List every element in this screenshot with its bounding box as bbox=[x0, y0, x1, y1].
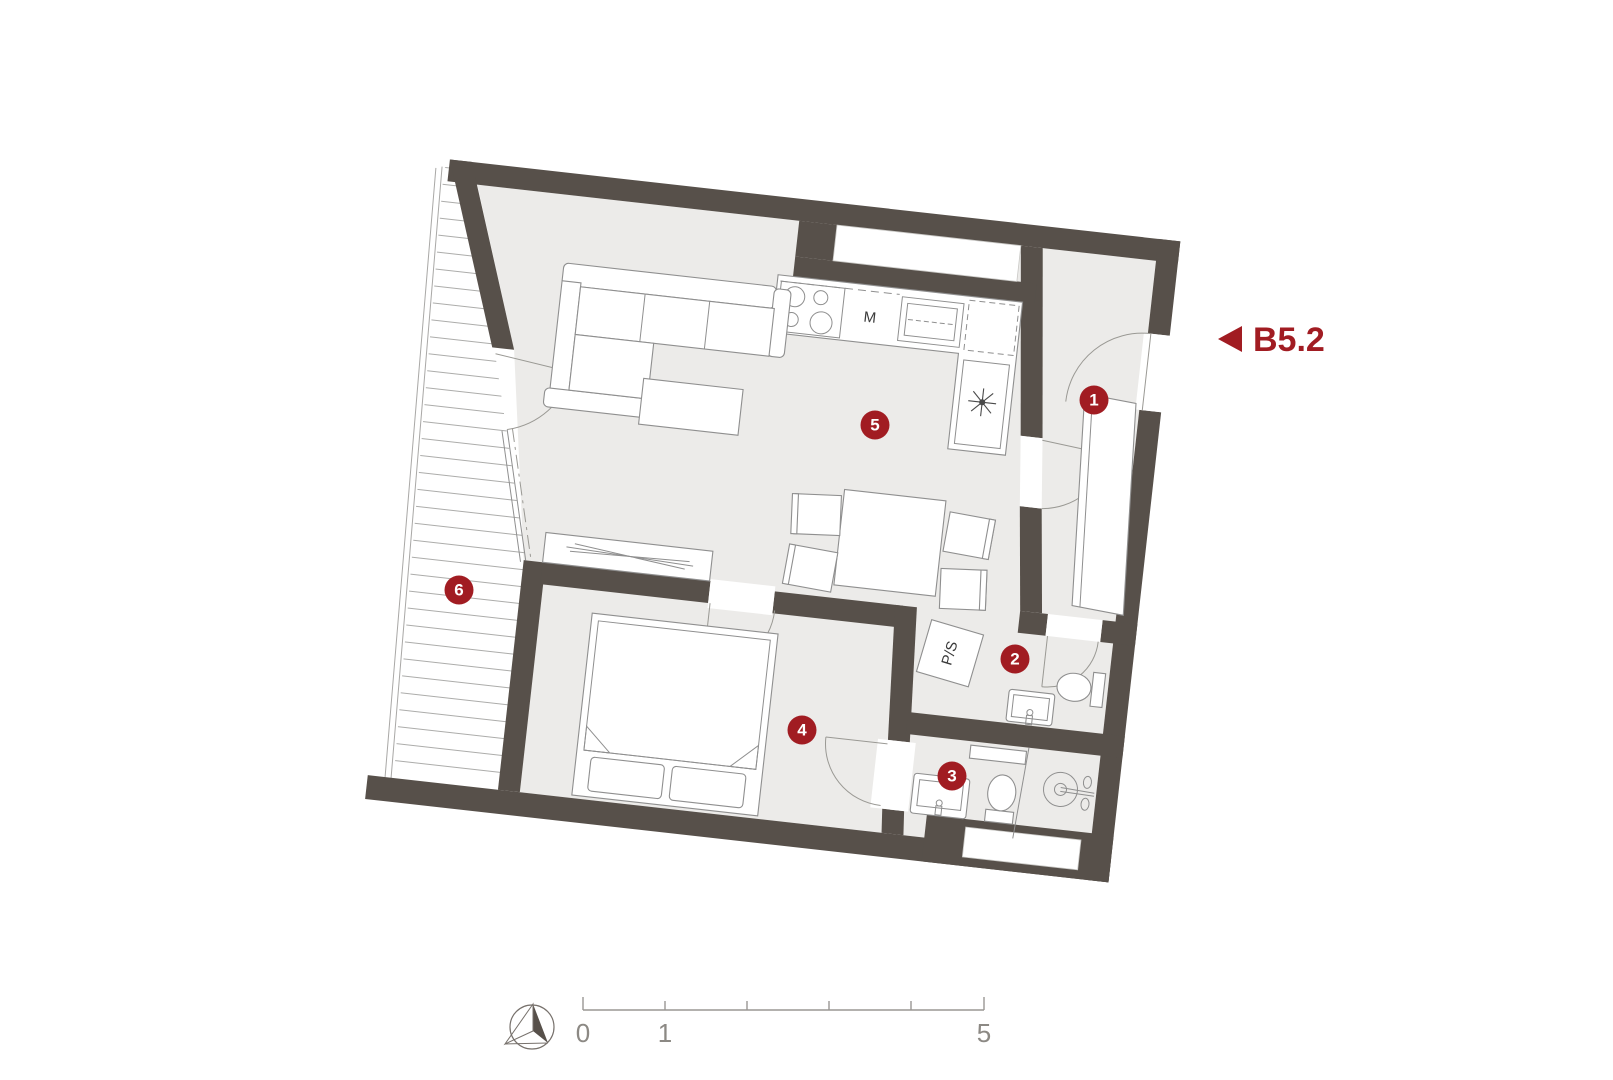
svg-text:3: 3 bbox=[947, 767, 956, 786]
dining-chair bbox=[791, 494, 842, 536]
bedroom-furniture bbox=[572, 613, 778, 816]
svg-text:5: 5 bbox=[870, 416, 879, 435]
microwave-label: M bbox=[863, 309, 877, 327]
room-marker-3: 3 bbox=[938, 762, 967, 791]
floorplan-canvas: M bbox=[0, 0, 1613, 1080]
bed bbox=[572, 613, 778, 816]
floorplan-page: M bbox=[0, 0, 1613, 1080]
svg-text:4: 4 bbox=[797, 721, 807, 740]
room-marker-2: 2 bbox=[1001, 645, 1030, 674]
dining-table bbox=[834, 489, 946, 596]
floor-plan: M bbox=[365, 158, 1184, 883]
bathroom-opening bbox=[870, 739, 915, 812]
room-marker-5: 5 bbox=[861, 411, 890, 440]
north-arrow-icon bbox=[505, 1004, 554, 1049]
room-marker-1: 1 bbox=[1080, 386, 1109, 415]
dining-chair bbox=[943, 512, 995, 560]
wall-hall-wc-right bbox=[1100, 620, 1137, 646]
unit-label-group: B5.2 bbox=[1218, 321, 1325, 359]
svg-text:6: 6 bbox=[454, 581, 463, 600]
wall-bedroom-bath-lower bbox=[880, 809, 907, 836]
sink-wc bbox=[1006, 689, 1055, 727]
left-triangle-icon bbox=[1218, 326, 1242, 352]
dining-chair bbox=[939, 568, 987, 610]
room-marker-4: 4 bbox=[788, 716, 817, 745]
scale-label-1: 1 bbox=[658, 1018, 672, 1048]
svg-text:2: 2 bbox=[1010, 650, 1019, 669]
svg-text:1: 1 bbox=[1089, 391, 1098, 410]
scale-label-5: 5 bbox=[977, 1018, 991, 1048]
wall-kitchen-pier bbox=[795, 221, 837, 261]
wall-hall-wc-left bbox=[1018, 611, 1048, 636]
dining-chair bbox=[782, 544, 837, 592]
room-marker-6: 6 bbox=[445, 576, 474, 605]
unit-label: B5.2 bbox=[1253, 321, 1325, 359]
scale-label-0: 0 bbox=[576, 1018, 590, 1048]
scale-bar: 0 1 5 bbox=[576, 997, 991, 1048]
